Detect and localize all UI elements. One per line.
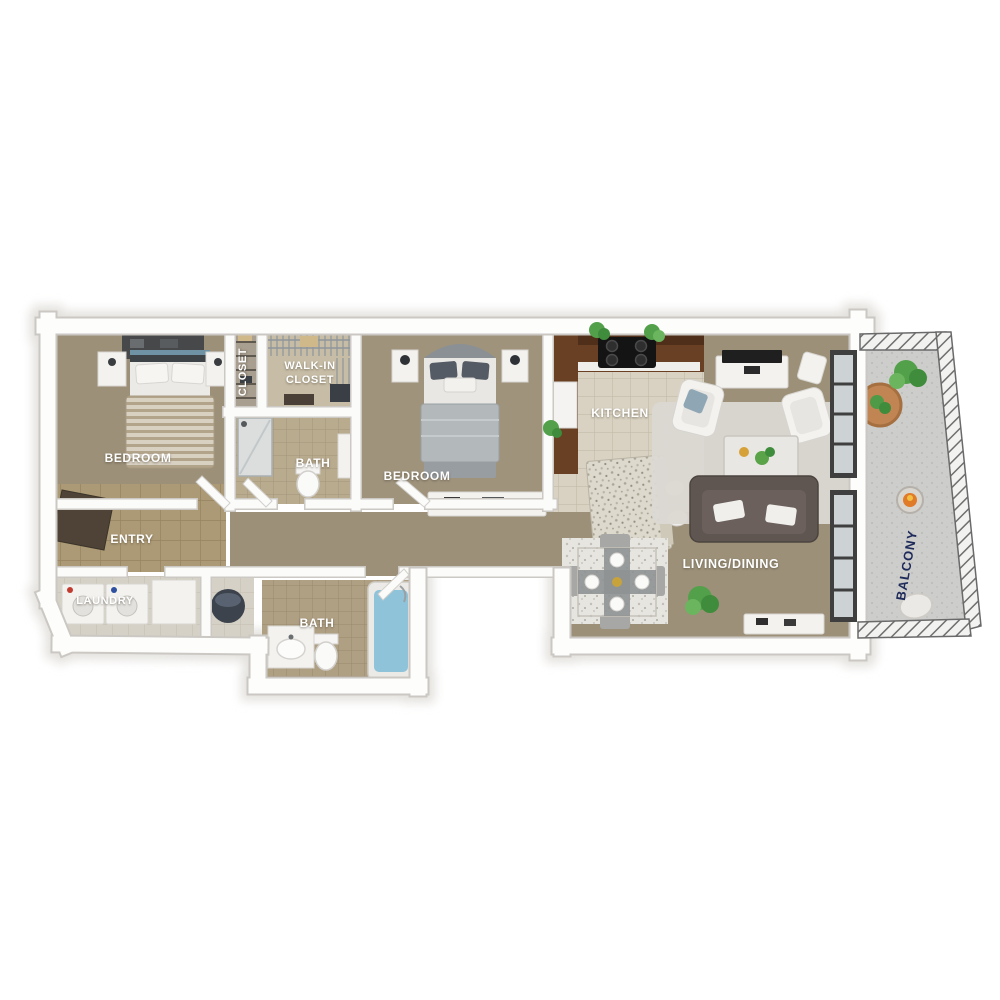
window-lower bbox=[830, 490, 857, 622]
bath-vanity bbox=[268, 626, 314, 668]
balcony-fire-pit bbox=[897, 487, 923, 513]
label-living-dining: LIVING/DINING bbox=[683, 557, 780, 571]
vanity-top bbox=[338, 434, 352, 478]
label-laundry: LAUNDRY bbox=[76, 595, 134, 607]
bathtub bbox=[368, 582, 414, 680]
label-kitchen: KITCHEN bbox=[591, 406, 649, 420]
laundry-cabinet bbox=[152, 580, 196, 624]
label-bath-bottom: BATH bbox=[300, 616, 335, 630]
cooktop bbox=[598, 337, 656, 368]
shoe-bench bbox=[744, 614, 824, 634]
refrigerator bbox=[553, 382, 577, 428]
label-bedroom-left: BEDROOM bbox=[105, 451, 172, 465]
tv-console bbox=[716, 350, 788, 388]
label-bath-top: BATH bbox=[296, 456, 331, 470]
toilet-bottom bbox=[314, 634, 338, 670]
label-closet: CLOSET bbox=[237, 348, 249, 396]
nightstand-mid-1 bbox=[392, 350, 418, 382]
nightstand-left-1 bbox=[98, 352, 126, 386]
window-upper bbox=[830, 350, 857, 478]
sofa bbox=[690, 476, 818, 542]
nightstand-mid-2 bbox=[502, 350, 528, 382]
label-entry: ENTRY bbox=[110, 532, 153, 546]
label-walkin-line1: WALK-IN bbox=[284, 360, 335, 372]
label-walkin-line2: CLOSET bbox=[286, 374, 334, 386]
water-heater bbox=[211, 589, 245, 623]
label-bedroom-middle: BEDROOM bbox=[384, 469, 451, 483]
dining-set bbox=[562, 534, 668, 629]
floorplan-canvas: BEDROOM CLOSET WALK-IN CLOSET BATH BEDRO… bbox=[0, 0, 1000, 1000]
floorplan-3d: BEDROOM CLOSET WALK-IN CLOSET BATH BEDRO… bbox=[0, 0, 1000, 1000]
coffee-table bbox=[724, 436, 798, 478]
